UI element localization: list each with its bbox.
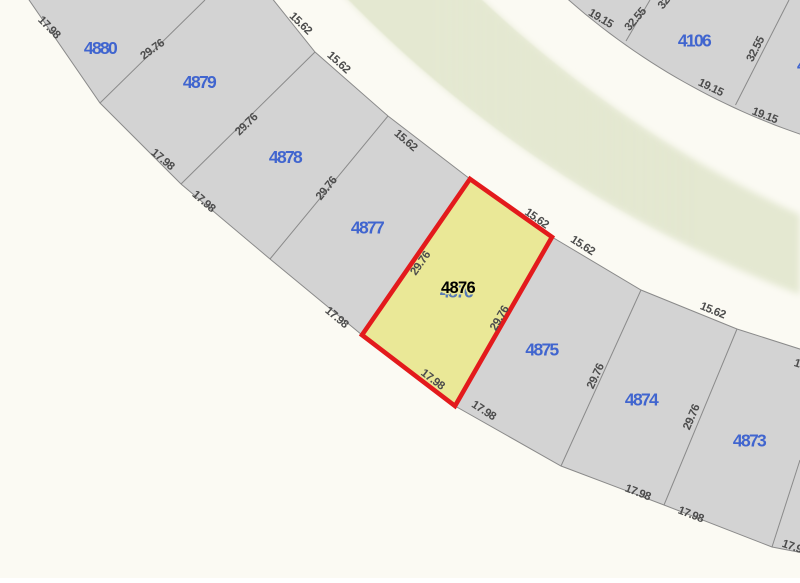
svg-text:4880: 4880 [84,38,118,58]
svg-text:4875: 4875 [525,339,559,359]
svg-text:4874: 4874 [625,389,659,409]
svg-text:4106: 4106 [678,30,712,50]
svg-text:4878: 4878 [269,147,303,167]
svg-text:4877: 4877 [351,217,384,237]
svg-text:4876: 4876 [441,279,475,297]
svg-text:4879: 4879 [183,72,217,92]
svg-text:4873: 4873 [733,430,767,450]
